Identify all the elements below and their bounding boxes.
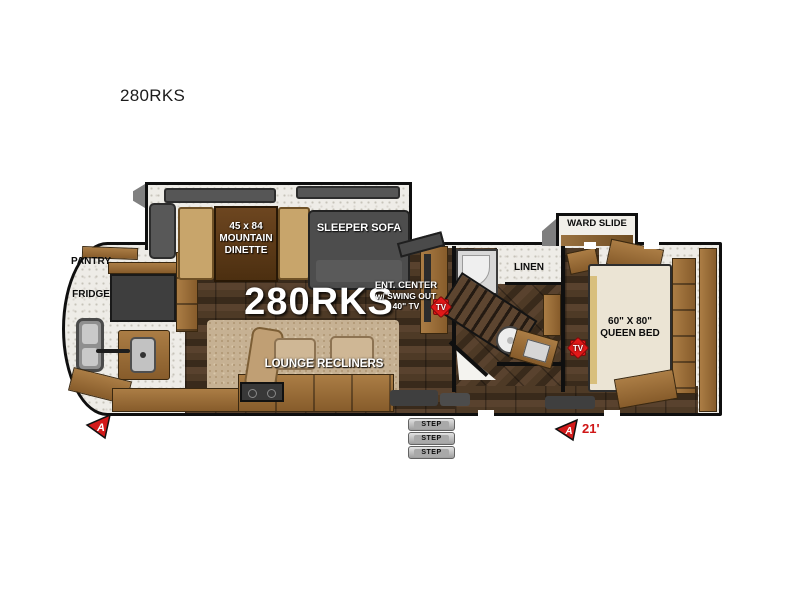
marker-a-icon: A [554,418,580,442]
entry-step: STEP [408,418,455,431]
bathroom-wall [561,246,565,392]
bedroom-window-icon [644,242,659,249]
rear-wardrobe [699,248,717,412]
ward-slide-shadow-icon [542,219,556,246]
slide-window-icon [296,186,400,199]
queen-bed-label: 60" X 80" QUEEN BED [590,316,670,340]
entry-step: STEP [408,446,455,459]
entry-step: STEP [408,432,455,445]
sleeper-sofa-label: SLEEPER SOFA [298,222,420,235]
kitchen-overhead-cabinet [108,262,178,274]
linen-label: LINEN [498,262,560,274]
kitchen-window-icon [76,318,104,372]
bed-headboard-storage [672,258,696,394]
length-label: 21' [582,421,600,436]
bathroom-cabinet [543,294,561,336]
fridge-label: FRIDGE [64,289,118,301]
entry-mat [440,393,470,406]
tv-location-icon: TV [566,336,590,360]
marker-a-icon: A [84,412,114,440]
floorplan-diagram: 45 x 84 MOUNTAIN DINETTE SLEEPER SOFA WA… [0,0,800,600]
fridge-unit [110,274,176,322]
linen-wall [505,282,563,285]
svg-text:A: A [96,422,105,434]
svg-text:A: A [564,426,572,437]
entry-mat [390,390,438,406]
slide-window-icon [164,188,276,203]
ward-slide-label: WARD SLIDE [559,218,635,229]
kitchen-sink [130,337,156,373]
front-window-icon [149,203,176,259]
lounge-recliners-label: LOUNGE RECLINERS [226,358,422,372]
pantry-label: PANTRY [64,256,118,268]
lower-window-icon [478,410,494,417]
tv-location-icon: TV [429,295,453,319]
slide-shadow-icon [133,184,145,208]
bedroom-mat [545,396,595,409]
floorplan-page: 280RKS 45 x 84 MOUNTAIN DINETTE SLEEPER … [0,0,800,600]
kitchen-counter [112,388,244,412]
lower-window-icon [604,410,620,417]
faucet-icon [96,349,130,353]
bedroom-window-icon [584,242,596,249]
dinette-label: 45 x 84 MOUNTAIN DINETTE [195,221,297,256]
cooktop [240,382,284,402]
